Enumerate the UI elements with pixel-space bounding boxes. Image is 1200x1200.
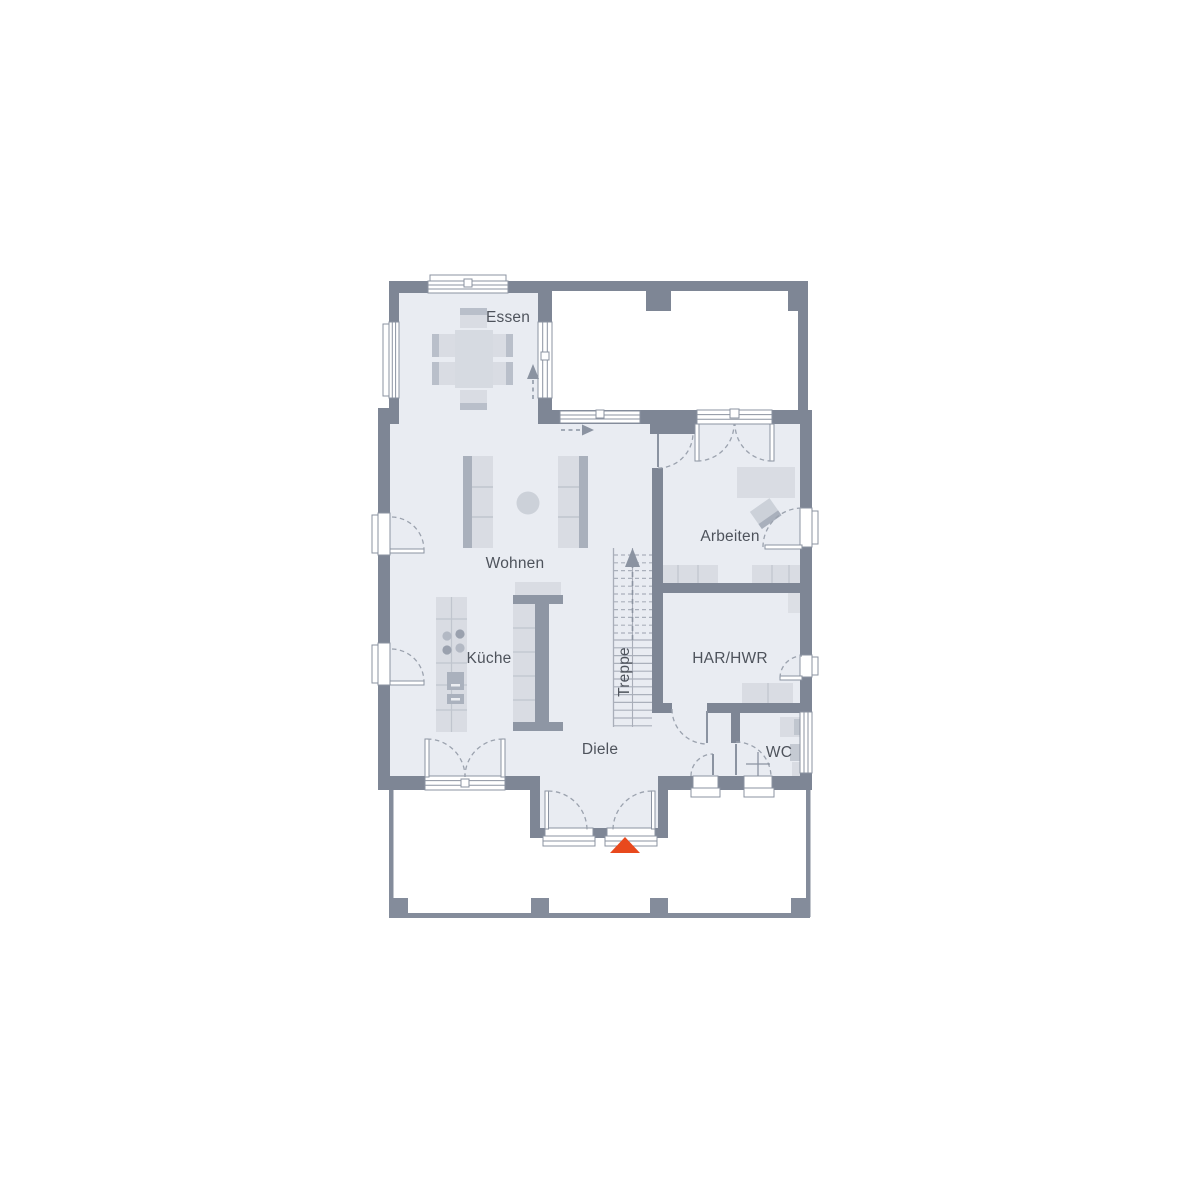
window-marker-icon bbox=[596, 410, 604, 418]
room-label-arbeiten: Arbeiten bbox=[700, 528, 759, 545]
terrace-pillar bbox=[389, 898, 408, 913]
door-leaf bbox=[425, 739, 429, 777]
room-label-treppe: Treppe bbox=[616, 647, 633, 697]
door-leaf bbox=[545, 791, 549, 829]
room-label-kueche: Küche bbox=[467, 650, 512, 667]
room-label-wohnen: Wohnen bbox=[486, 555, 545, 572]
window-marker-icon bbox=[461, 779, 469, 787]
door-leaf bbox=[390, 549, 424, 553]
door-leaf bbox=[780, 676, 802, 680]
window-marker-icon bbox=[464, 279, 472, 287]
door-leaf bbox=[501, 739, 505, 777]
room-label-essen: Essen bbox=[486, 309, 530, 326]
room-label-wc: WC bbox=[766, 744, 792, 761]
door-leaf bbox=[390, 681, 424, 685]
room-label-har-hwr: HAR/HWR bbox=[692, 650, 767, 667]
room-label-diele: Diele bbox=[582, 741, 618, 758]
floor-plan-page: Essen Wohnen Küche Diele Treppe Arbeiten… bbox=[0, 0, 1200, 1200]
window-marker-icon bbox=[730, 409, 739, 418]
window-marker-icon bbox=[541, 352, 549, 360]
door-leaf bbox=[652, 791, 656, 829]
terrace-pillar bbox=[650, 898, 668, 913]
door-leaf bbox=[770, 424, 774, 461]
coffee-table-icon bbox=[517, 492, 540, 515]
door-leaf bbox=[695, 424, 699, 461]
door-leaf bbox=[765, 545, 802, 549]
kitchen-counter-icon bbox=[436, 597, 467, 732]
terrace-pillar bbox=[791, 898, 810, 913]
floor-plan-image: Essen Wohnen Küche Diele Treppe Arbeiten… bbox=[0, 0, 1200, 1200]
terrace-pillar bbox=[531, 898, 549, 913]
oven-icon bbox=[447, 672, 464, 704]
